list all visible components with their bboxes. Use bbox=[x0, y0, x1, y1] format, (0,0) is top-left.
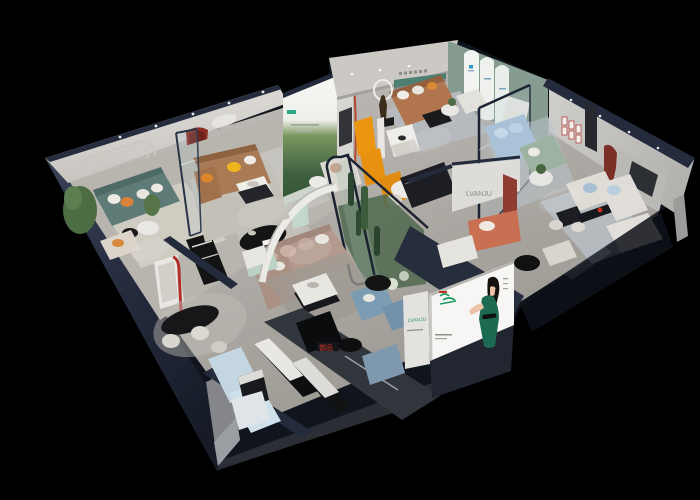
svg-text:御品: 御品 bbox=[319, 343, 333, 352]
svg-text:LVANJU: LVANJU bbox=[466, 191, 492, 198]
